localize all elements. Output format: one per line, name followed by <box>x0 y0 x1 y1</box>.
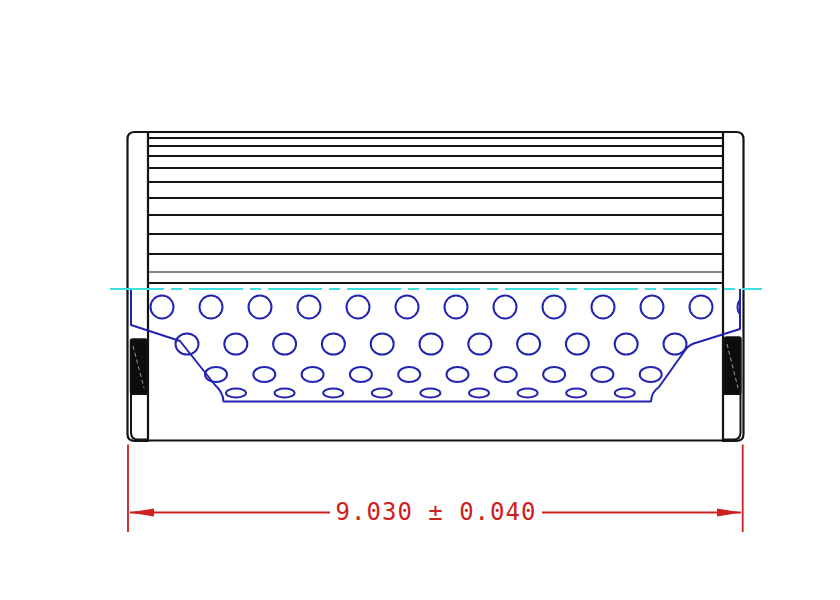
perforations-on-edge <box>176 334 687 383</box>
perforation-hole <box>249 296 272 319</box>
perforation-hole <box>690 296 713 319</box>
perforation-hole <box>350 367 372 382</box>
perforation-hole <box>592 296 615 319</box>
perforation-hole <box>396 296 419 319</box>
perforation-hole <box>445 296 468 319</box>
seals <box>131 337 742 394</box>
perforation-hole <box>543 367 565 382</box>
perforation-hole <box>591 367 613 382</box>
perforation-hole <box>273 334 296 355</box>
perforation-hole <box>420 334 443 355</box>
perforation-hole <box>151 296 174 319</box>
dimension-text: 9.030 ± 0.040 <box>336 498 537 526</box>
perforation-hole <box>298 296 321 319</box>
perforation-hole <box>641 296 664 319</box>
perforation-hole <box>447 367 469 382</box>
pleat-lines <box>148 132 723 441</box>
perforations-clipped <box>151 296 761 398</box>
perforation-hole <box>495 367 517 382</box>
perforation-hole <box>322 334 345 355</box>
perforation-hole <box>494 296 517 319</box>
perforation-hole <box>371 334 394 355</box>
perforation-hole <box>200 296 223 319</box>
perforation-hole <box>543 296 566 319</box>
filter-cross-section-drawing: 9.030 ± 0.040 <box>0 0 840 600</box>
perforation-hole <box>323 389 343 398</box>
dimension-annotation: 9.030 ± 0.040 <box>128 445 743 533</box>
perforation-hole <box>615 334 638 355</box>
perforation-hole <box>468 334 491 355</box>
perforation-hole <box>302 367 324 382</box>
perforation-hole <box>566 334 589 355</box>
perforations <box>151 296 761 398</box>
perforation-hole <box>398 367 420 382</box>
perforation-hole <box>205 367 227 382</box>
perforation-hole <box>226 389 246 398</box>
perforation-hole <box>253 367 275 382</box>
dimension-arrowhead <box>717 509 742 517</box>
perforation-hole <box>469 389 489 398</box>
perforation-hole <box>224 334 247 355</box>
dimension-arrowhead <box>129 509 154 517</box>
end-caps <box>128 132 744 441</box>
perforation-hole <box>518 389 538 398</box>
perforation-hole <box>275 389 295 398</box>
perforation-hole <box>640 367 662 382</box>
perforation-hole <box>566 389 586 398</box>
drawing-page: 9.030 ± 0.040 <box>0 0 840 600</box>
perforation-hole <box>517 334 540 355</box>
perforation-hole <box>372 389 392 398</box>
perforation-hole <box>664 334 687 355</box>
perforation-hole <box>347 296 370 319</box>
perforation-hole <box>615 389 635 398</box>
perforation-hole <box>420 389 440 398</box>
